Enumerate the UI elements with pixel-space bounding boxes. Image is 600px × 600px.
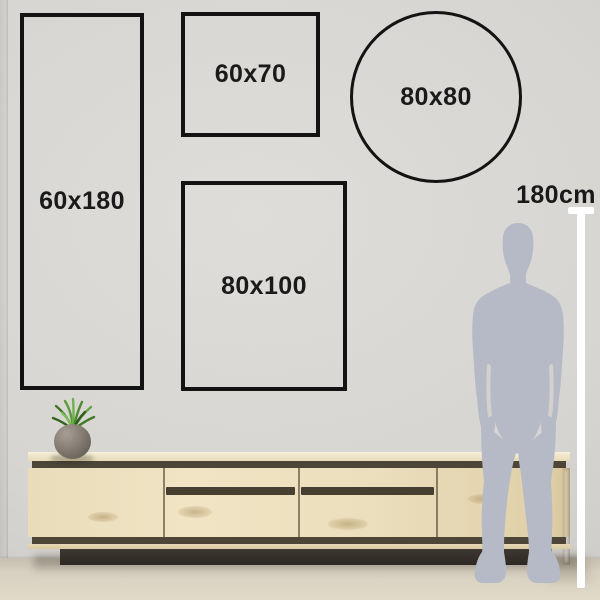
size-option-80x80: 80x80 xyxy=(350,11,522,183)
panel-seam xyxy=(436,468,438,537)
wood-knot xyxy=(178,506,212,518)
drawer-handle-slot xyxy=(166,487,295,495)
size-option-60x180: 60x180 xyxy=(20,13,144,390)
height-marker-label: 180cm xyxy=(514,181,598,210)
panel-seam xyxy=(298,468,300,537)
drawer-handle-slot xyxy=(301,487,434,495)
wood-knot xyxy=(328,518,368,530)
wall-corner-line xyxy=(0,0,8,562)
wood-knot xyxy=(88,512,118,522)
size-guide-scene: 60x180 60x70 80x80 80x100 180cm xyxy=(0,0,600,600)
size-label: 60x70 xyxy=(215,60,287,89)
panel-seam xyxy=(163,468,165,537)
person-silhouette-icon xyxy=(468,223,578,583)
height-marker-line xyxy=(577,209,585,588)
size-label: 80x100 xyxy=(221,272,307,301)
size-label: 80x80 xyxy=(400,83,472,112)
size-label: 60x180 xyxy=(39,187,125,216)
size-option-80x100: 80x100 xyxy=(181,181,347,391)
size-option-60x70: 60x70 xyxy=(181,12,320,137)
potted-plant xyxy=(46,396,100,466)
plant-pot xyxy=(54,424,91,459)
